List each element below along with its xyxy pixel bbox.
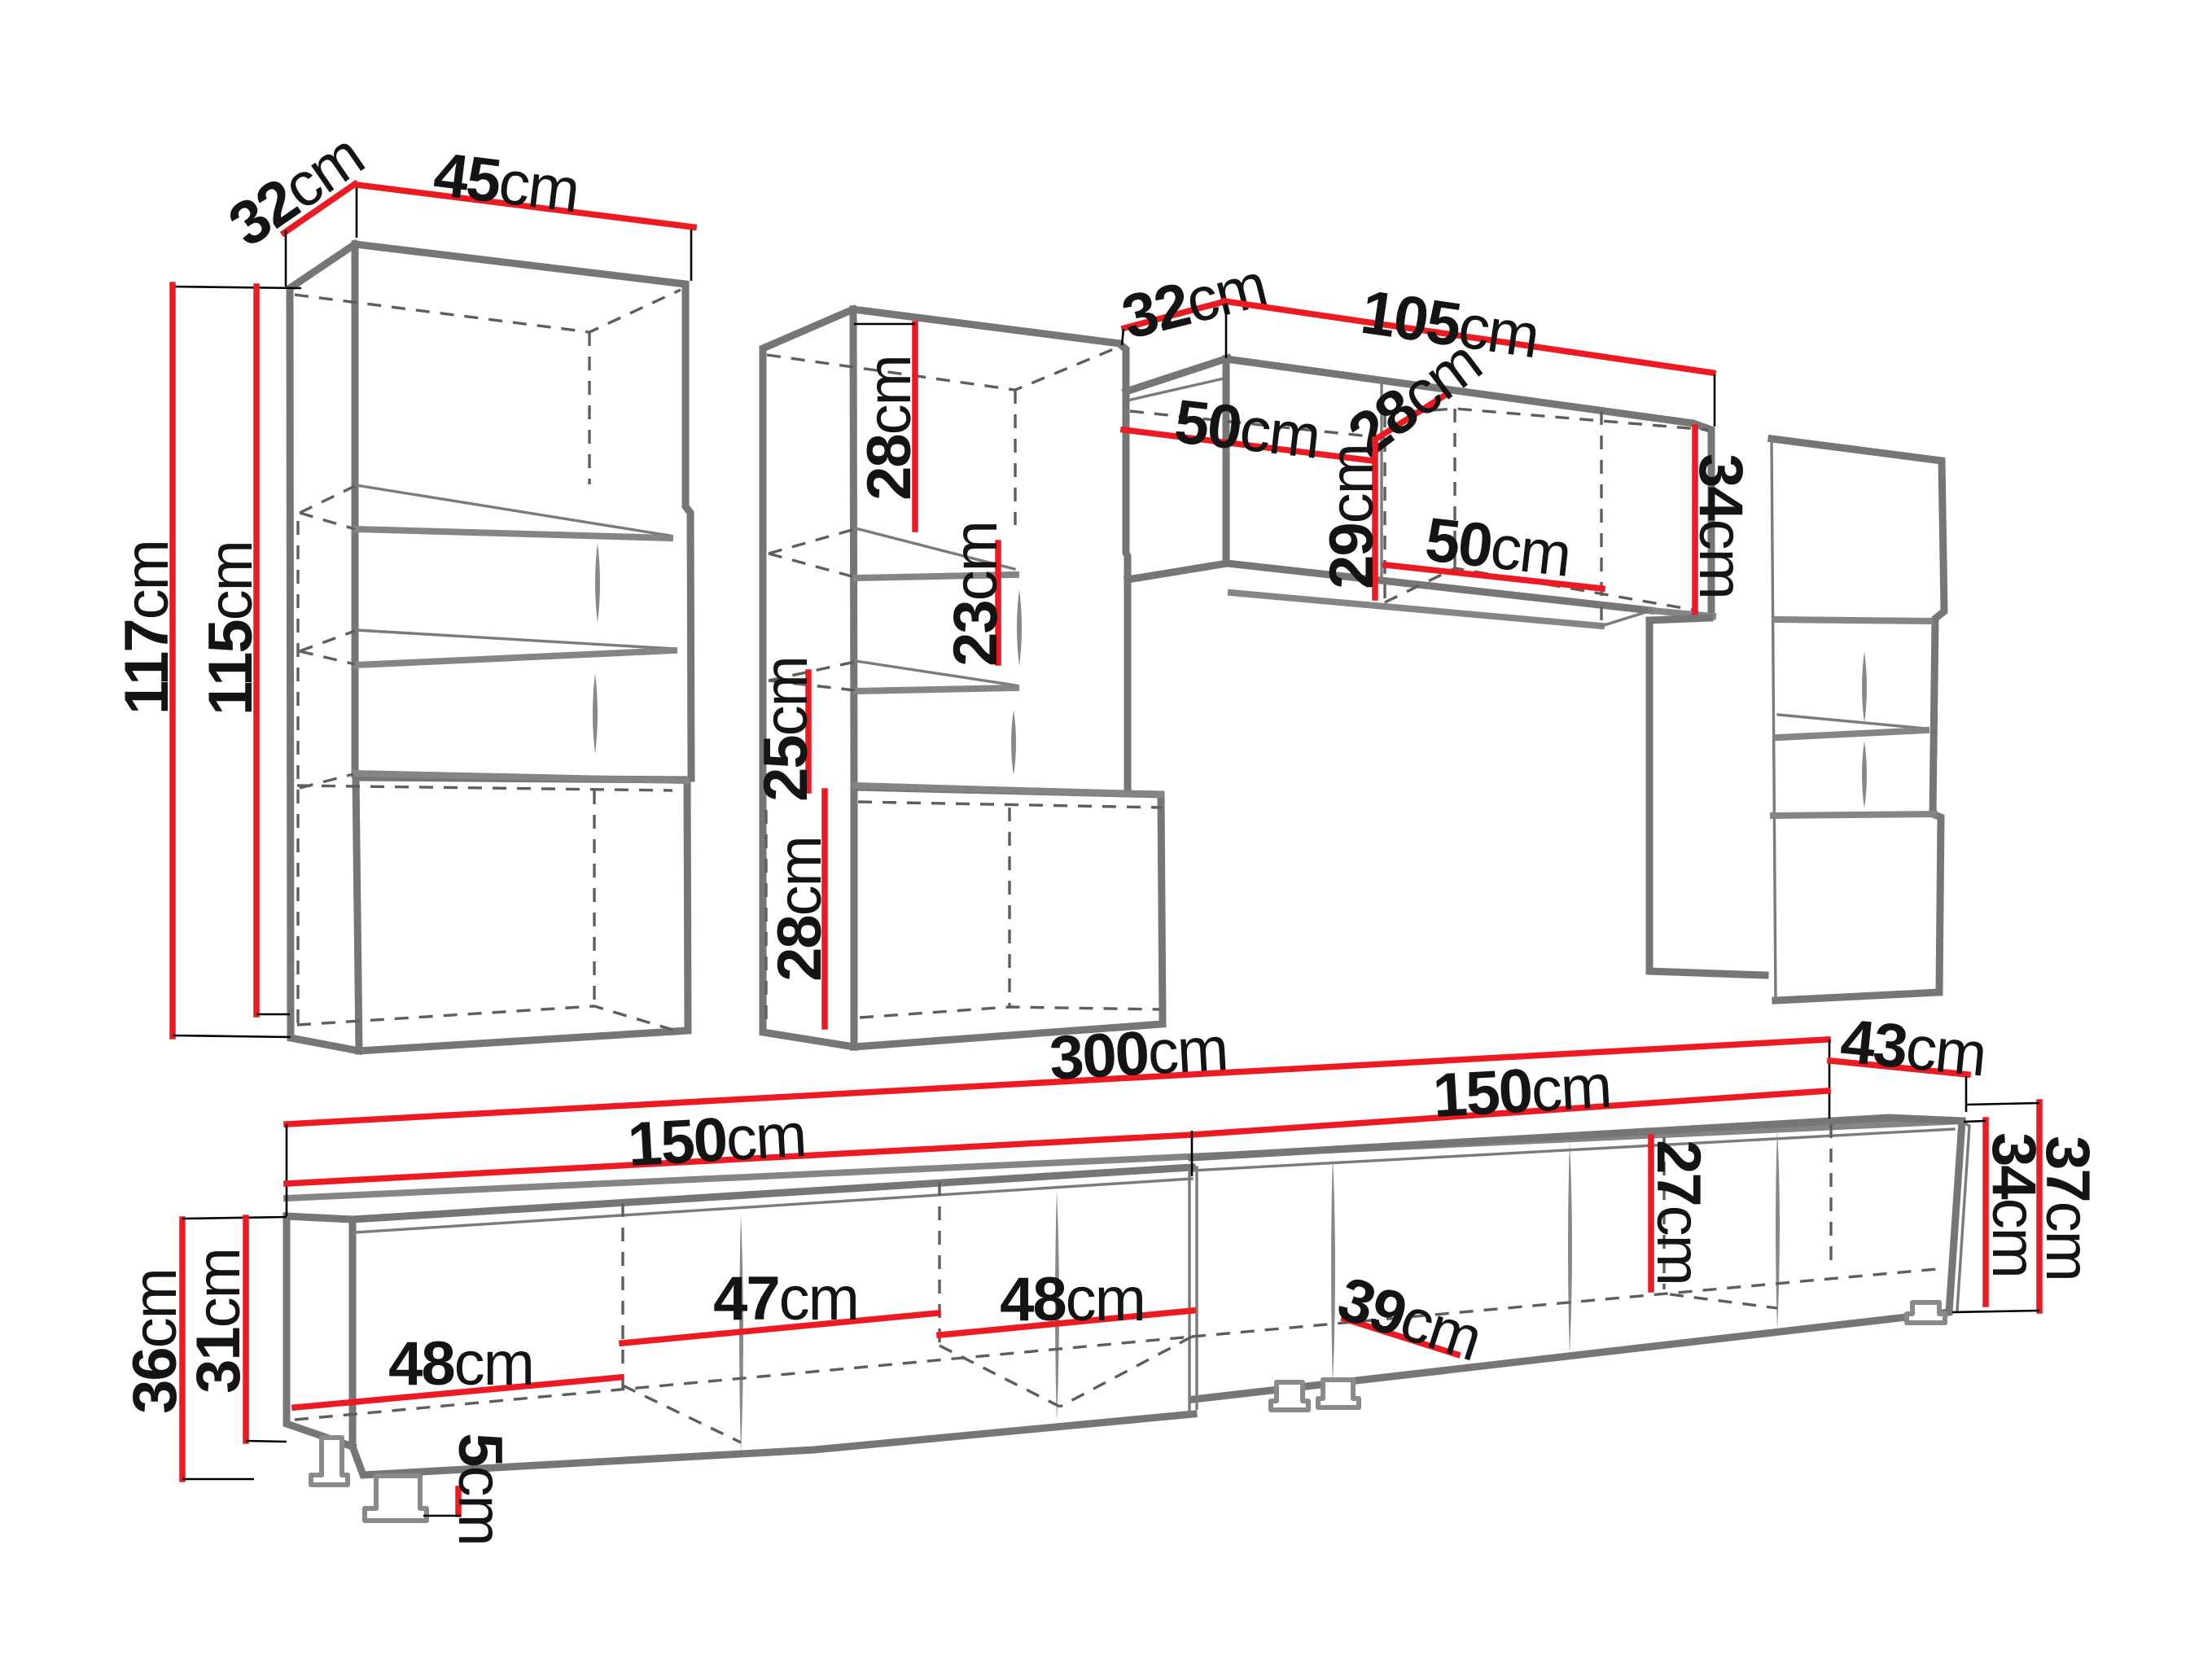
svg-text:47cm: 47cm [713,1264,858,1333]
svg-text:300cm: 300cm [1048,1014,1229,1093]
svg-text:27cm: 27cm [1644,1140,1713,1285]
svg-text:150cm: 150cm [626,1101,808,1180]
svg-text:34cm: 34cm [1686,453,1755,598]
svg-text:48cm: 48cm [1000,1265,1145,1334]
svg-text:28cm: 28cm [855,356,924,501]
svg-text:36cm: 36cm [120,1269,190,1414]
svg-text:23cm: 23cm [941,522,1010,667]
svg-text:28cm: 28cm [765,837,834,982]
svg-text:117cm: 117cm [112,541,182,715]
svg-text:31cm: 31cm [184,1249,253,1394]
svg-text:43cm: 43cm [1837,1006,1988,1089]
svg-text:5cm: 5cm [445,1433,515,1545]
svg-text:48cm: 48cm [388,1329,533,1399]
svg-text:34cm: 34cm [1979,1132,2048,1277]
svg-text:115cm: 115cm [196,541,265,716]
svg-text:29cm: 29cm [1317,444,1386,589]
svg-text:25cm: 25cm [751,657,821,802]
svg-text:150cm: 150cm [1431,1052,1613,1131]
